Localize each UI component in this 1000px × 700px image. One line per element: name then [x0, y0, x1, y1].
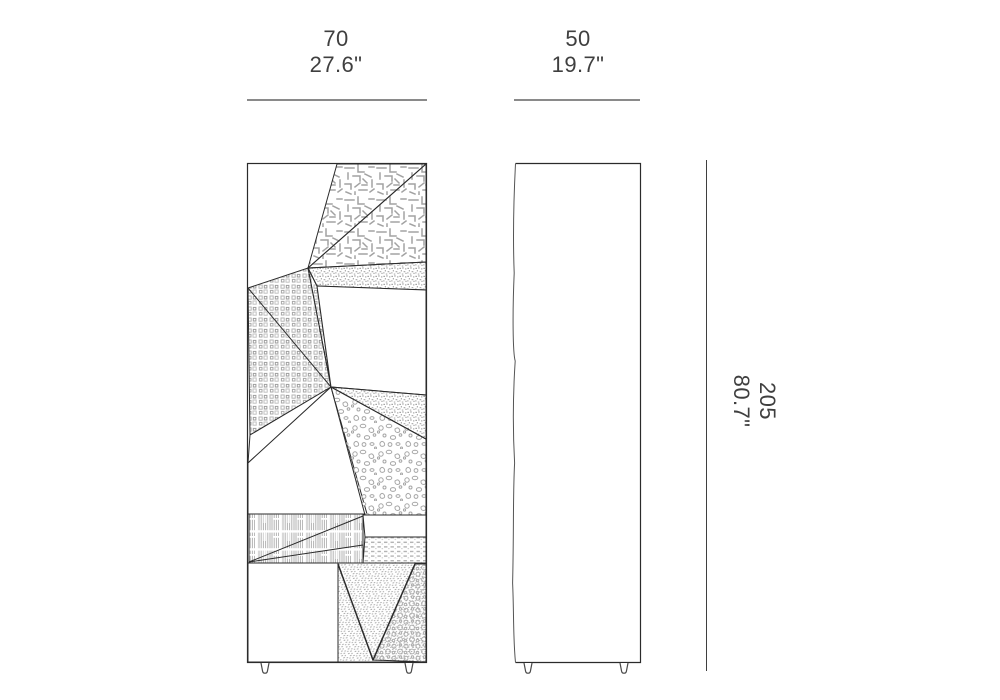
- dimension-diagram: 70 27.6" 50 19.7" 205 80.7": [0, 0, 1000, 700]
- front-right-foot: [405, 663, 413, 673]
- side-facet-profile: [513, 164, 516, 663]
- bricks-band: [363, 537, 426, 563]
- mid-right-door: [317, 286, 426, 395]
- front-left-foot: [261, 663, 269, 673]
- side-feet: [524, 663, 628, 673]
- side-outline: [516, 164, 641, 663]
- front-view-drawing: [248, 164, 427, 674]
- front-feet: [261, 663, 413, 673]
- small-white-drawer: [363, 515, 426, 537]
- bottom-left-door: [248, 563, 338, 662]
- side-left-foot: [524, 663, 532, 673]
- side-view-drawing: [513, 164, 641, 674]
- cabinet-technical-drawing: [0, 0, 1000, 700]
- side-right-foot: [620, 663, 628, 673]
